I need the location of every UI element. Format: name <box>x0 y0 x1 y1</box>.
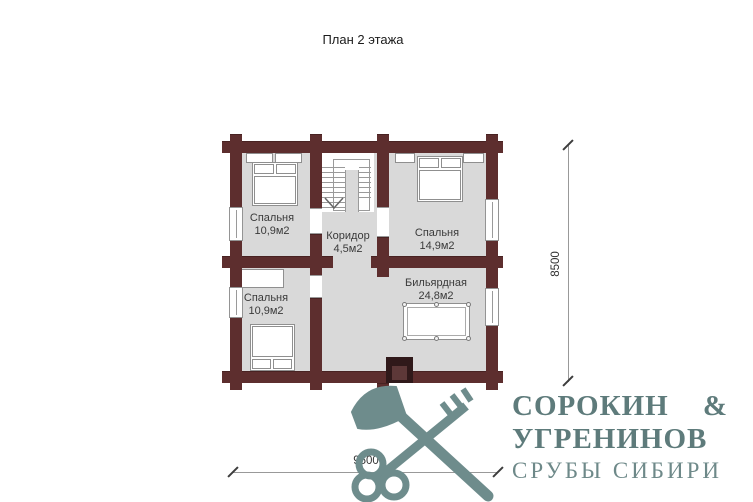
page-title: План 2 этажа <box>287 32 439 47</box>
stair-steps-right <box>359 167 371 200</box>
room-name: Бильярдная <box>396 277 476 290</box>
wardrobe-symbol <box>240 269 284 288</box>
room-name: Спальня <box>226 292 306 305</box>
logo-name-left: СОРОКИН <box>512 390 669 423</box>
stair-direction-arrow-icon <box>324 197 344 210</box>
bed-symbol <box>252 162 298 206</box>
room-area: 4,5м2 <box>308 243 388 256</box>
room-name: Спальня <box>232 212 312 225</box>
wall-bedroom3-right <box>310 298 322 390</box>
wall-exterior-left <box>230 134 242 390</box>
room-label-bedroom-3: Спальня 10,9м2 <box>226 292 306 318</box>
wall-interior-middle-right <box>371 256 503 268</box>
wall-corridor-right-upper <box>377 134 389 207</box>
bed-symbol <box>250 324 295 371</box>
room-area: 10,9м2 <box>226 305 306 318</box>
logo-ampersand: & <box>703 390 728 423</box>
room-label-bedroom-2: Спальня 14,9м2 <box>397 227 477 253</box>
room-label-billiard: Бильярдная 24,8м2 <box>396 277 476 303</box>
floor-plan-page: План 2 этажа <box>0 0 753 502</box>
billiard-table-symbol <box>403 303 470 340</box>
room-name: Спальня <box>397 227 477 240</box>
window-right-bottom <box>485 288 499 326</box>
dimension-line-vertical <box>568 145 569 382</box>
logo-line-1: СОРОКИН & <box>512 390 728 423</box>
wall-corridor-left-upper <box>310 134 322 208</box>
stair-center-wall <box>345 170 359 212</box>
bed-symbol <box>417 156 463 202</box>
wall-exterior-right <box>486 134 498 390</box>
room-label-bedroom-1: Спальня 10,9м2 <box>232 212 312 238</box>
door-opening-bedroom-3 <box>310 275 322 298</box>
room-area: 14,9м2 <box>397 240 477 253</box>
nightstand-symbol <box>395 153 415 163</box>
dimension-label-height: 8500 <box>550 244 562 284</box>
nightstand-symbol <box>463 153 484 163</box>
room-area: 24,8м2 <box>396 290 476 303</box>
room-area: 10,9м2 <box>232 225 312 238</box>
logo-tagline: СРУБЫ СИБИРИ <box>512 456 748 486</box>
room-label-corridor: Коридор 4,5м2 <box>308 230 388 256</box>
window-right-top <box>485 199 499 241</box>
room-name: Коридор <box>308 230 388 243</box>
logo-line-2: УГРЕНИНОВ <box>512 423 748 456</box>
wall-exterior-top <box>222 141 503 153</box>
axe-key-logo-icon <box>338 378 516 502</box>
logo-text-block: СОРОКИН & УГРЕНИНОВ СРУБЫ СИБИРИ <box>512 390 748 486</box>
